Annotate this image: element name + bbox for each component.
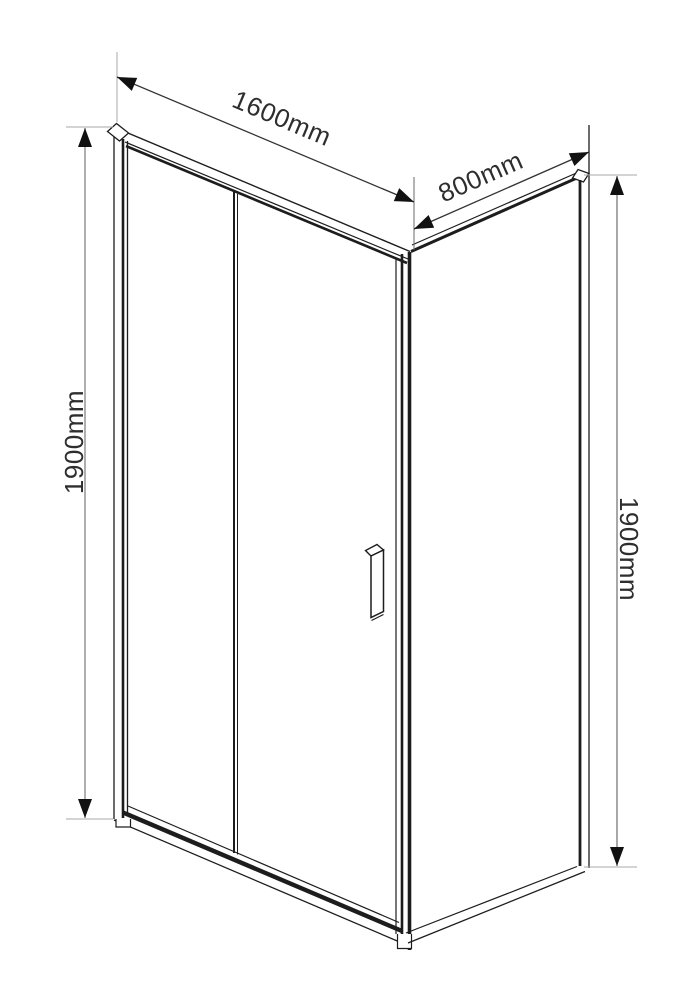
sliding-door-panels xyxy=(234,192,384,855)
front-door-frame xyxy=(108,124,412,951)
side-panel-bottom-lower-edge xyxy=(408,872,585,944)
side-panel-bottom-upper-edge xyxy=(406,867,577,934)
side-panel xyxy=(406,125,589,943)
dimension-height-right: 1900mm xyxy=(584,175,644,867)
top-rail-mid-edge xyxy=(125,142,408,259)
depth-dimension-label: 800mm xyxy=(434,145,528,208)
top-left-corner-cap xyxy=(108,124,129,142)
left-foot xyxy=(116,819,131,827)
shower-enclosure-technical-drawing: 1600mm 800mm 1900mm 1900mm xyxy=(0,0,694,1000)
dimension-depth: 800mm xyxy=(414,145,589,229)
bottom-rail-lower-edge xyxy=(114,820,402,943)
height-left-dimension-label: 1900mm xyxy=(59,390,89,494)
door-handle xyxy=(366,545,384,621)
width-dimension-label: 1600mm xyxy=(228,84,336,152)
height-right-dimension-label: 1900mm xyxy=(614,497,644,601)
top-rail-lower-edge xyxy=(126,146,407,263)
dimension-height-left: 1900mm xyxy=(59,127,113,819)
drawing-canvas: 1600mm 800mm 1900mm 1900mm xyxy=(0,0,694,1000)
right-foot xyxy=(398,934,412,949)
side-panel-top-rail xyxy=(411,178,578,252)
top-rail-upper-edge xyxy=(116,128,410,252)
dimension-width: 1600mm xyxy=(117,52,414,250)
bottom-rail-profile xyxy=(123,813,402,932)
door-handle-front-face xyxy=(371,550,384,618)
bottom-rail-upper-edge xyxy=(128,806,399,923)
